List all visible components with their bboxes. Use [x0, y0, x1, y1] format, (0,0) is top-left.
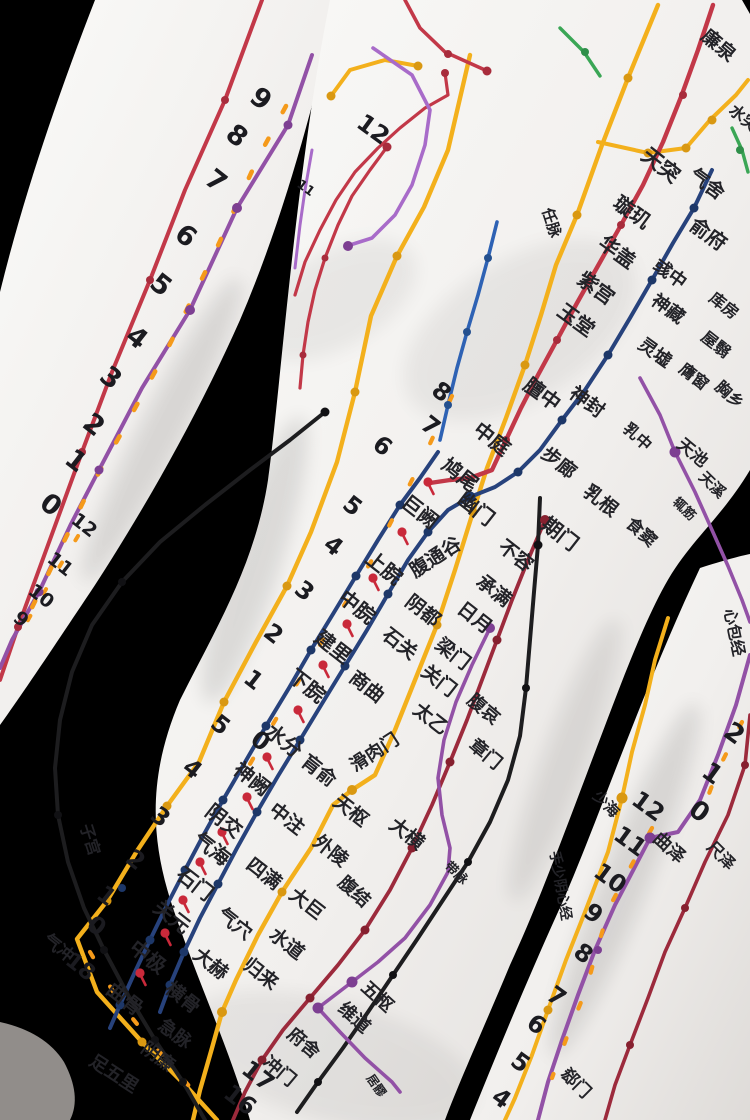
model-canvas: 廉泉 水突 天突 气舍 任脉 璇玑 华盖 紫宫 玉堂 膻中 中庭 鸠尾 巨阙 上… — [0, 0, 750, 1120]
photo-acupuncture-model: 廉泉 水突 天突 气舍 任脉 璇玑 华盖 紫宫 玉堂 膻中 中庭 鸠尾 巨阙 上… — [0, 0, 750, 1120]
